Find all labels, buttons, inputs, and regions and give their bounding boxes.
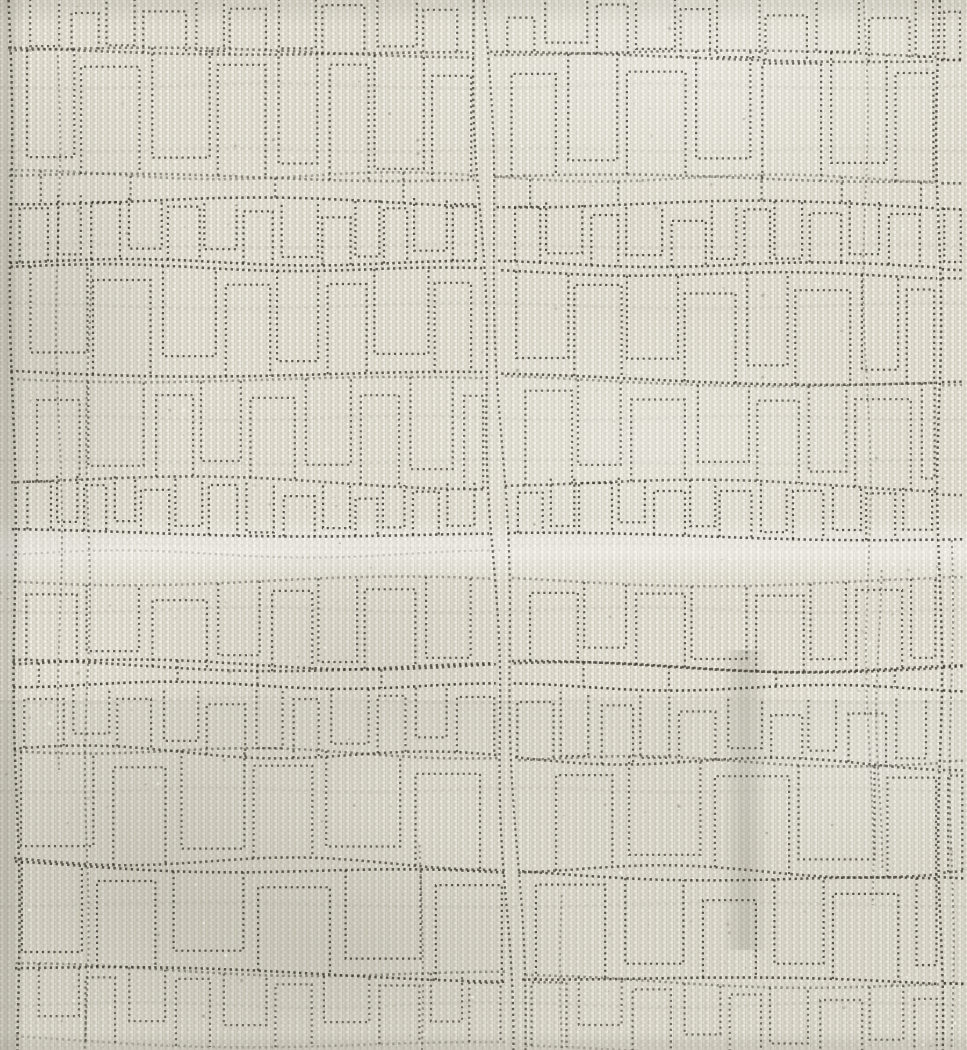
fabric-photo-frame [0, 0, 967, 1050]
fabric-weave-svg [0, 0, 967, 1050]
page: { "scene": { "description": "Close-up ph… [0, 0, 967, 1050]
